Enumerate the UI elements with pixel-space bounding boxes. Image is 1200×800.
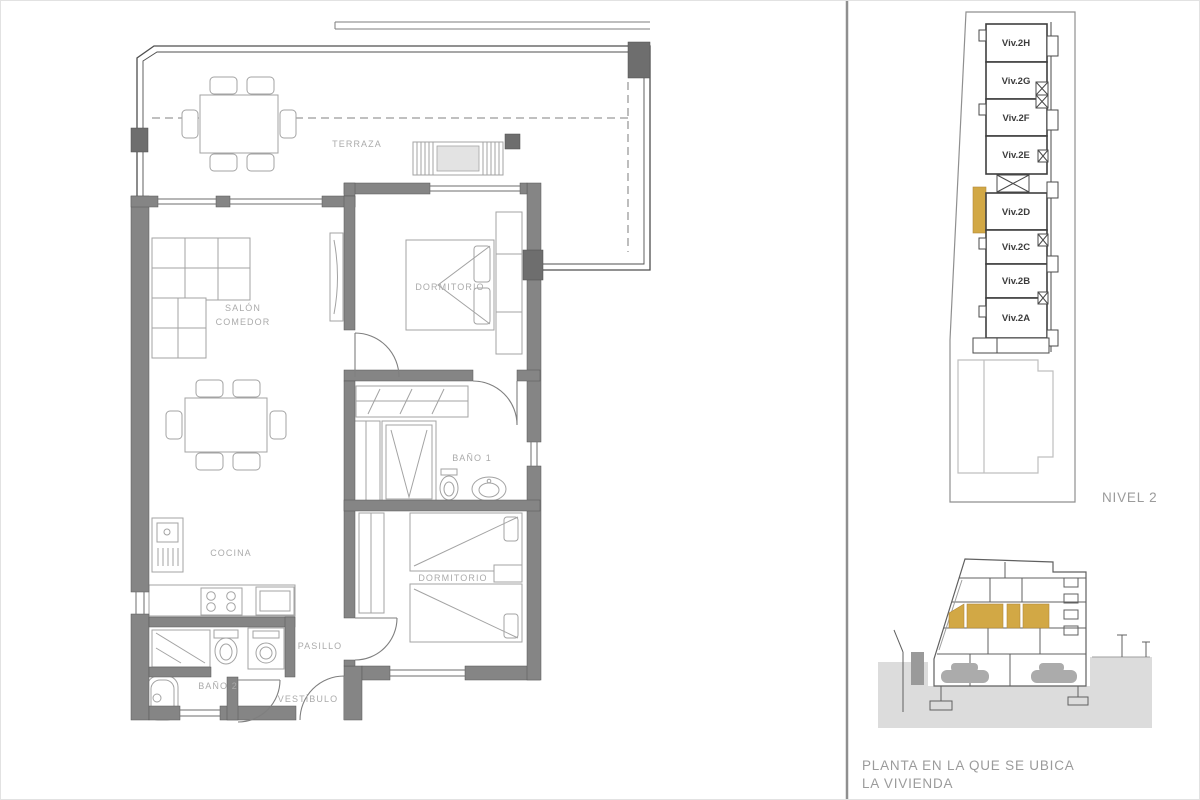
corner-pillar [628,42,650,78]
vestibule-window [180,710,220,716]
car-icon [941,670,989,683]
bathroom1-door [473,381,517,425]
level-label: NIVEL 2 [1102,490,1157,505]
bedroom2-wardrobe [359,513,384,613]
below-2A-core [973,338,1049,353]
kitchen-window [136,592,144,614]
label-pasillo: PASILLO [298,641,343,651]
toilet-1 [440,469,458,500]
unit-label-2H: Viv.2H [1002,38,1030,49]
bedroom1-window [430,186,520,191]
floor-plan: TERRAZA SALÓN COMEDOR DORMITORIO BAÑO 1 … [131,22,650,722]
label-bano-2: BAÑO 2 [198,681,238,691]
single-bed-2 [410,584,522,642]
unit-label-2G: Viv.2G [1002,76,1031,87]
single-bed-1 [410,513,522,571]
grade-markers [1092,635,1150,657]
stove [201,588,242,615]
shower-2 [152,630,210,667]
bedroom1-wardrobe [496,212,522,354]
nightstand [494,565,522,582]
listing-plan-image: TERRAZA SALÓN COMEDOR DORMITORIO BAÑO 1 … [0,0,1200,800]
adjacent-footprint [958,360,1053,473]
key-plan: Viv.2H Viv.2G Viv.2F Viv.2E Viv.2D Viv.2… [950,12,1157,505]
label-salon-2: COMEDOR [216,317,271,327]
salon-window-2 [230,199,322,204]
unit-stack [973,22,1058,353]
car-icon [1031,670,1077,683]
terrace-lounger [413,142,503,175]
section-caption: PLANTA EN LA QUE SE UBICA LA VIVIENDA [862,758,1075,791]
unit-label-2C: Viv.2C [1002,242,1030,253]
terrace-dining-table [182,77,296,171]
label-cocina: COCINA [210,548,252,558]
unit-label-2E: Viv.2E [1002,150,1030,161]
unit-label-2B: Viv.2B [1002,276,1030,287]
fridge [256,587,294,615]
kitchen-furniture [149,518,295,616]
kitchen-sink-unit [152,518,183,572]
unit-label-2A: Viv.2A [1002,313,1030,324]
label-dormitorio-1: DORMITORIO [415,282,484,292]
salon-furniture [152,233,343,470]
unit-2D-terrace-highlight [973,187,986,233]
building-section [878,559,1152,728]
shower-1 [382,421,436,503]
label-salon-1: SALÓN [225,303,261,313]
salon-dining-table [166,380,286,470]
terrace-door-block [523,250,543,280]
unit-left-notches [979,30,986,317]
highlighted-level [949,604,1049,628]
salon-window-1 [158,199,216,204]
roof-overhang-line [335,22,650,29]
tv-unit [330,233,343,321]
plan-drawing: TERRAZA SALÓN COMEDOR DORMITORIO BAÑO 1 … [0,0,1200,800]
unit-label-2F: Viv.2F [1002,113,1029,124]
retaining-block [911,652,924,685]
label-bano-1: BAÑO 1 [452,453,492,463]
unit-label-2D: Viv.2D [1002,207,1030,218]
bathroom1-window [531,442,537,466]
label-dormitorio-2: DORMITORIO [418,573,487,583]
label-vestibulo: VESTÍBULO [278,694,338,704]
toilet-2 [214,630,238,664]
bedroom2-window [390,670,465,676]
bathroom1-fixtures [352,386,506,503]
terrace [131,22,650,270]
bedroom2-door [355,618,397,660]
corner-sofa [152,238,250,358]
railing-pillar [131,128,148,152]
label-terraza: TERRAZA [332,139,382,149]
corridor-wardrobe [356,386,468,417]
caption-line-2: LA VIVIENDA [862,776,953,791]
planter [505,134,520,149]
sink-1 [472,477,506,501]
stair-core [997,175,1029,192]
caption-line-1: PLANTA EN LA QUE SE UBICA [862,758,1075,773]
washing-machine [248,628,284,669]
bath1-closet [352,421,380,501]
